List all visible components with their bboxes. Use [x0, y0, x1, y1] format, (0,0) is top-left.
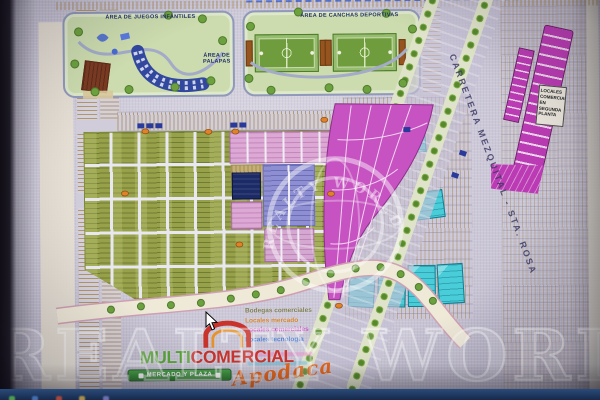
multicomercial-logo: MULTICOMERCIAL MERCADO Y PLAZA Apodaca: [119, 320, 315, 396]
taskbar-icon: [32, 396, 38, 400]
banner-text: MERCADO Y PLAZA: [147, 372, 213, 379]
plaza-icon: [215, 372, 220, 377]
playground-area-label: ÁREA DE JUEGOS INFANTILES: [90, 14, 210, 21]
mercado-plaza-banner: MERCADO Y PLAZA: [127, 369, 231, 382]
rainbow-arch-icon: [211, 329, 243, 348]
taskbar-icon: [79, 396, 85, 400]
site-plan-photo: LOCALES COMERCIALES EN SEGUNDA PLANTA: [0, 0, 600, 400]
taskbar-icon: [56, 396, 62, 400]
taskbar: [0, 389, 600, 400]
mercado-icon: [139, 373, 144, 378]
taskbar-icon: [103, 396, 109, 400]
photo-dark-edge: [0, 0, 16, 400]
sports-area-label: ÁREA DE CANCHAS DEPORTIVAS: [284, 12, 414, 19]
palapas-arc: [138, 51, 203, 86]
plan-content: LOCALES COMERCIALES EN SEGUNDA PLANTA: [0, 0, 600, 400]
park-paths: [79, 39, 407, 79]
palapas-area-label: ÁREA DE PALAPAS: [197, 53, 237, 65]
logo-multi: MULTI: [140, 347, 191, 367]
taskbar-icon: [9, 396, 15, 400]
